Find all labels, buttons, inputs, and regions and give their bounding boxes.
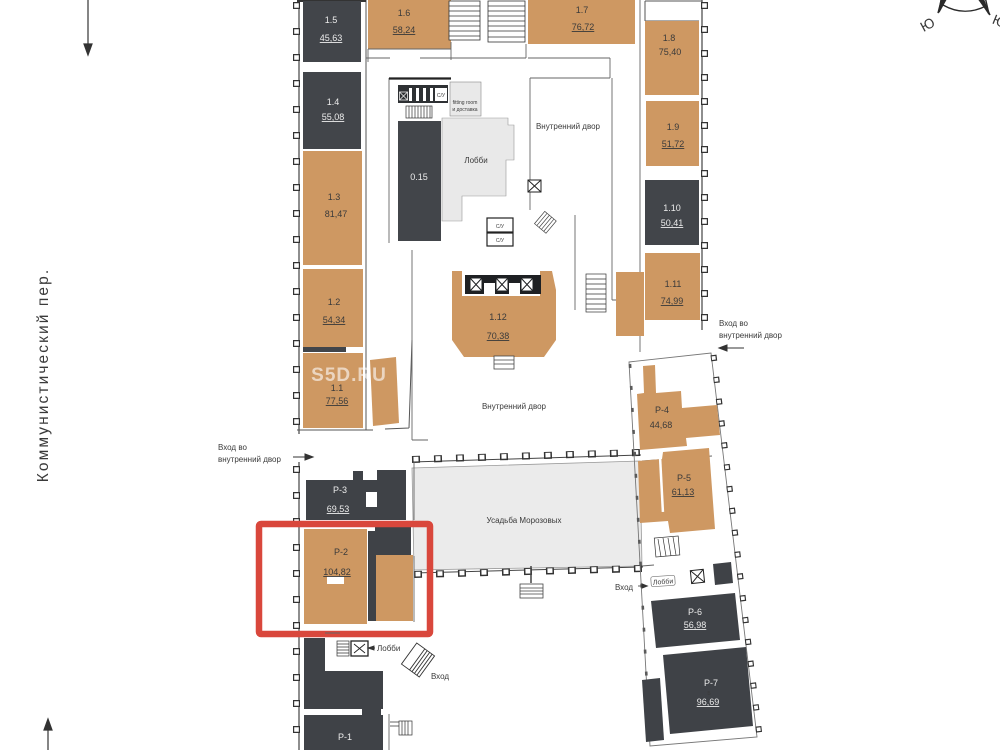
svg-text:1.12: 1.12 (489, 312, 507, 322)
svg-text:и доставка: и доставка (452, 107, 477, 113)
svg-text:Вход во: Вход во (719, 319, 748, 328)
svg-text:1.3: 1.3 (328, 192, 341, 202)
svg-text:С/У: С/У (496, 224, 505, 230)
svg-text:56,98: 56,98 (684, 620, 707, 630)
svg-text:45,63: 45,63 (320, 33, 343, 43)
svg-text:Р-3: Р-3 (333, 485, 347, 495)
svg-text:Р-5: Р-5 (677, 473, 691, 483)
svg-text:1.8: 1.8 (663, 33, 676, 43)
svg-text:81,47: 81,47 (325, 209, 348, 219)
svg-text:1.7: 1.7 (576, 5, 589, 15)
svg-text:0.15: 0.15 (410, 172, 428, 182)
svg-text:Усадьба Морозовых: Усадьба Морозовых (487, 516, 562, 525)
svg-text:51,72: 51,72 (662, 139, 685, 149)
svg-text:Коммунистический пер.: Коммунистический пер. (35, 268, 52, 483)
svg-text:70,38: 70,38 (487, 331, 510, 341)
svg-text:74,99: 74,99 (661, 296, 684, 306)
svg-text:С/У: С/У (496, 238, 505, 244)
svg-text:Р-4: Р-4 (655, 405, 669, 415)
svg-text:С/У: С/У (437, 93, 446, 99)
svg-text:75,40: 75,40 (659, 47, 682, 57)
svg-text:Р-1: Р-1 (338, 732, 352, 742)
svg-text:76,72: 76,72 (572, 22, 595, 32)
svg-text:58,24: 58,24 (393, 25, 416, 35)
svg-text:55,08: 55,08 (322, 112, 345, 122)
svg-text:Вход: Вход (615, 583, 633, 592)
svg-text:внутренний двор: внутренний двор (218, 455, 282, 464)
svg-text:Лобби: Лобби (653, 577, 674, 586)
svg-text:44,68: 44,68 (650, 420, 673, 430)
svg-text:1.10: 1.10 (663, 203, 681, 213)
svg-text:Лобби: Лобби (464, 156, 487, 165)
svg-text:Р-6: Р-6 (688, 607, 702, 617)
svg-text:61,13: 61,13 (672, 487, 695, 497)
svg-text:Внутренний двор: Внутренний двор (536, 122, 601, 131)
svg-text:1.9: 1.9 (667, 122, 680, 132)
svg-text:69,53: 69,53 (327, 504, 350, 514)
svg-text:Р-7: Р-7 (704, 678, 718, 688)
svg-text:внутренний двор: внутренний двор (719, 331, 783, 340)
svg-text:Внутренний двор: Внутренний двор (482, 402, 547, 411)
svg-text:77,56: 77,56 (326, 396, 349, 406)
svg-text:1.5: 1.5 (325, 15, 338, 25)
svg-text:Лобби: Лобби (377, 644, 400, 653)
svg-text:1.6: 1.6 (398, 8, 411, 18)
svg-text:fitting room: fitting room (453, 100, 478, 106)
svg-text:1.2: 1.2 (328, 297, 341, 307)
svg-text:54,34: 54,34 (323, 315, 346, 325)
svg-text:50,41: 50,41 (661, 218, 684, 228)
svg-text:1.11: 1.11 (665, 279, 682, 289)
svg-text:Вход во: Вход во (218, 443, 247, 452)
svg-text:S5D.RU: S5D.RU (311, 365, 387, 386)
svg-text:1.4: 1.4 (327, 97, 340, 107)
svg-text:Р-2: Р-2 (334, 547, 348, 557)
svg-text:104,82: 104,82 (323, 567, 351, 577)
svg-text:Вход: Вход (431, 672, 449, 681)
svg-text:96,69: 96,69 (697, 697, 720, 707)
